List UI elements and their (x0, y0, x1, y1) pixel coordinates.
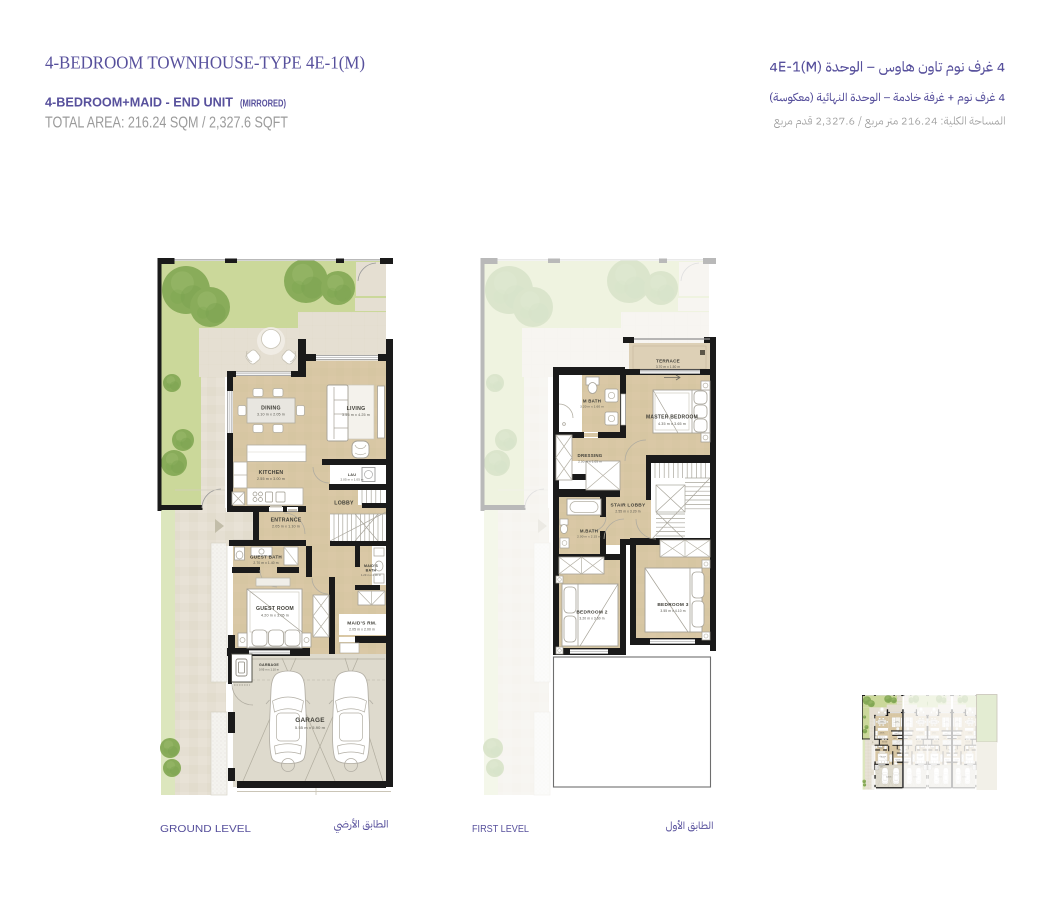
svg-text:4-BEDROOM TOWNHOUSE-TYPE 4E-1(: 4-BEDROOM TOWNHOUSE-TYPE 4E-1(M) (45, 53, 365, 74)
svg-text:KITCHEN: KITCHEN (259, 470, 284, 476)
svg-text:MAID’S RM.: MAID’S RM. (347, 621, 376, 627)
svg-text:MASTER BEDROOM: MASTER BEDROOM (646, 415, 698, 421)
svg-text:GARBAGE: GARBAGE (259, 663, 279, 667)
svg-text:4-BEDROOM+MAID - END UNIT: 4-BEDROOM+MAID - END UNIT (45, 96, 233, 110)
svg-text:M BATH: M BATH (583, 399, 601, 404)
svg-text:2.05 m x 2.00 m: 2.05 m x 2.00 m (349, 628, 375, 632)
svg-text:4.20 m x 3.05 m: 4.20 m x 3.05 m (261, 614, 289, 618)
svg-text:3.55 m x 4.10 m: 3.55 m x 4.10 m (660, 609, 685, 613)
svg-text:2.05 m x 1.10 m: 2.05 m x 1.10 m (272, 525, 300, 529)
svg-text:DRESSING: DRESSING (578, 453, 603, 458)
svg-text:TERRACE: TERRACE (656, 359, 680, 364)
svg-text:BEDROOM 3: BEDROOM 3 (657, 602, 688, 608)
svg-text:3.55 m x 4.25 m: 3.55 m x 4.25 m (342, 413, 370, 417)
svg-text:GARAGE: GARAGE (295, 717, 325, 724)
svg-text:M.BATH: M.BATH (580, 529, 598, 534)
svg-text:GUEST BATH: GUEST BATH (250, 555, 282, 560)
svg-text:GUEST ROOM: GUEST ROOM (256, 606, 294, 612)
svg-text:LAU: LAU (348, 473, 357, 477)
svg-text:TOTAL AREA: 216.24 SQM / 2,327: TOTAL AREA: 216.24 SQM / 2,327.6 SQFT (45, 115, 288, 132)
svg-text:2.70 m x 1.40 m: 2.70 m x 1.40 m (253, 561, 278, 565)
svg-text:3.10 m x 2.05 m: 3.10 m x 2.05 m (257, 413, 285, 417)
svg-text:2.55 m x 3.20 m: 2.55 m x 3.20 m (615, 510, 640, 514)
svg-text:3.70 m x 1.50 m: 3.70 m x 1.50 m (656, 365, 681, 369)
svg-text:3.20 m x 3.60 m: 3.20 m x 3.60 m (579, 617, 604, 621)
svg-text:2.55 m x 3.00 m: 2.55 m x 3.00 m (257, 477, 285, 481)
svg-text:3.20 m x 1.60 m: 3.20 m x 1.60 m (580, 405, 604, 409)
svg-text:2.05 m x 1.05 m: 2.05 m x 1.05 m (340, 478, 363, 482)
svg-text:LOBBY: LOBBY (334, 501, 354, 507)
svg-text:LIVING: LIVING (347, 406, 366, 412)
svg-text:BEDROOM 2: BEDROOM 2 (576, 610, 607, 616)
svg-text:DINING: DINING (261, 406, 281, 412)
svg-text:0.95 m x 1.10 m: 0.95 m x 1.10 m (259, 668, 279, 672)
svg-text:4.35 m x 3.65 m: 4.35 m x 3.65 m (658, 422, 686, 426)
svg-text:MAID’S: MAID’S (364, 564, 378, 568)
svg-text:5.55 m x 5.90 m: 5.55 m x 5.90 m (295, 725, 326, 730)
svg-text:GROUND LEVEL: GROUND LEVEL (160, 823, 251, 835)
svg-text:(MIRRORED): (MIRRORED) (240, 99, 286, 110)
svg-text:1.20 m x 2.00 m: 1.20 m x 2.00 m (361, 573, 381, 577)
svg-text:BATH: BATH (366, 569, 377, 573)
svg-text:ENTRANCE: ENTRANCE (271, 518, 302, 524)
svg-text:FIRST LEVEL: FIRST LEVEL (472, 823, 529, 835)
svg-text:STAIR LOBBY: STAIR LOBBY (611, 503, 646, 509)
svg-text:2.00 m x 2.15 m: 2.00 m x 2.15 m (577, 535, 601, 539)
svg-text:2.00 m x 1.05 m: 2.00 m x 1.05 m (578, 460, 602, 464)
